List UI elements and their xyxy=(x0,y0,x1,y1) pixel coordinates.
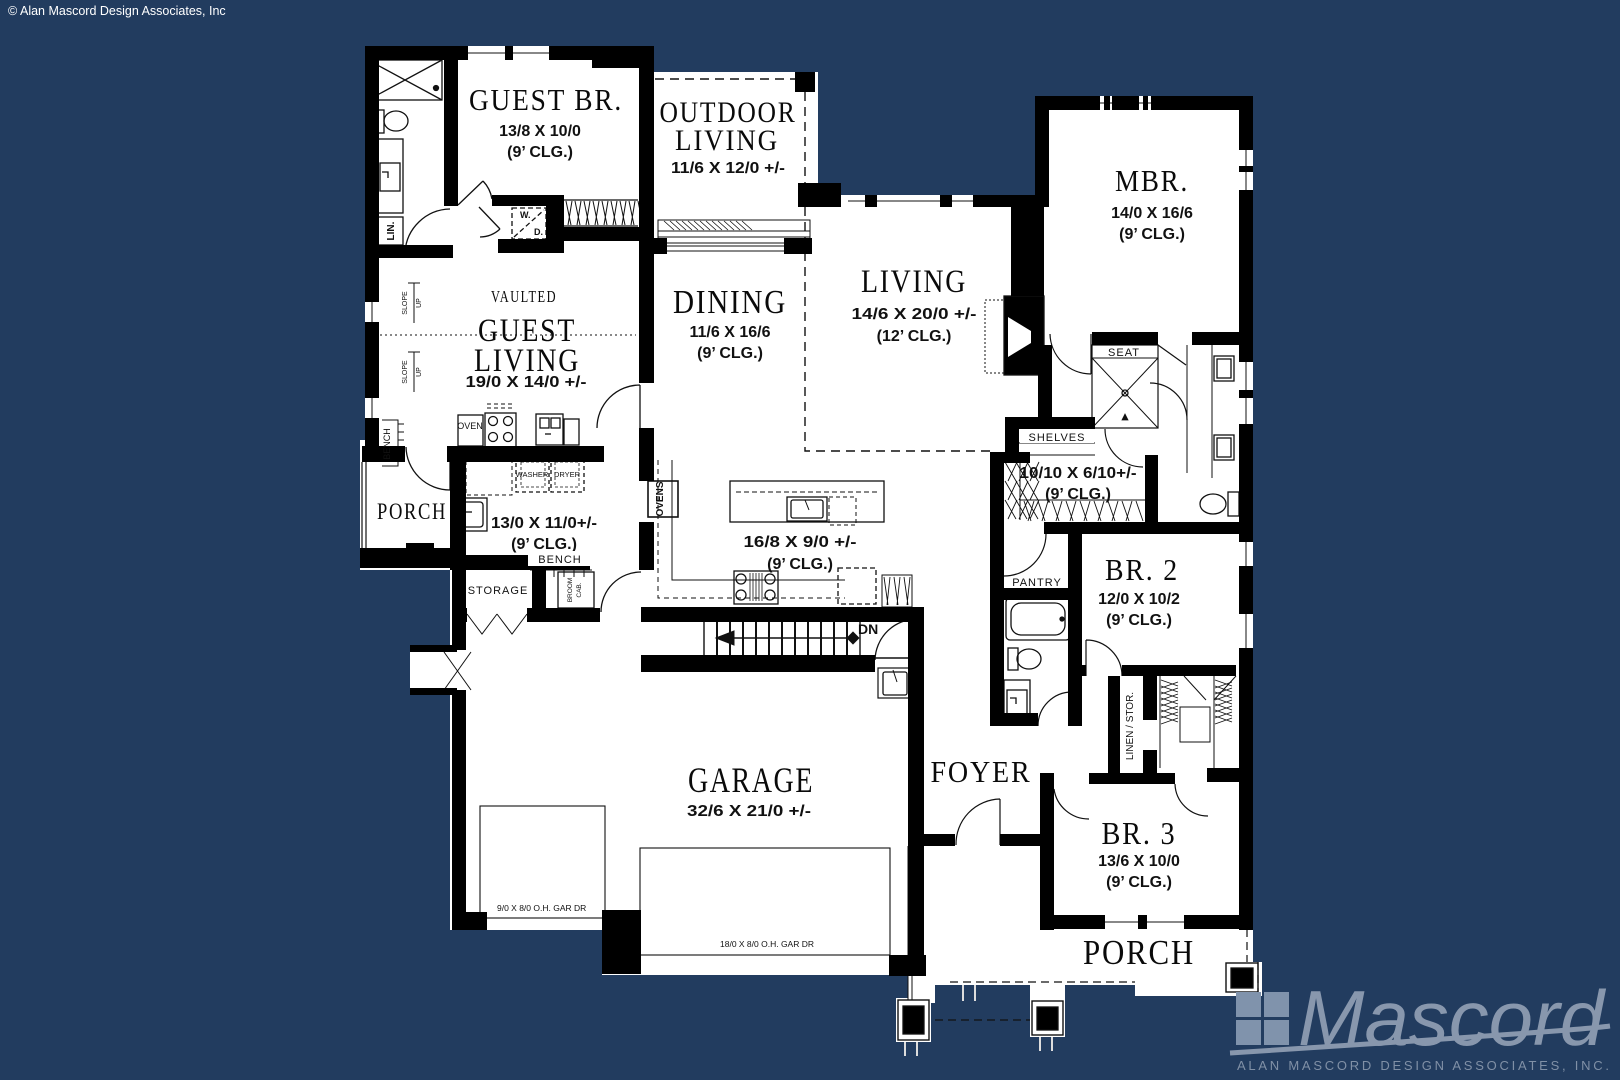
svg-text:PORCH: PORCH xyxy=(377,499,447,524)
svg-text:Mascord: Mascord xyxy=(1298,974,1607,1062)
svg-text:BR. 2: BR. 2 xyxy=(1105,552,1179,587)
svg-text:LIVING: LIVING xyxy=(675,124,779,157)
svg-text:UP: UP xyxy=(416,298,423,308)
svg-text:12/0 X 10/2: 12/0 X 10/2 xyxy=(1098,591,1180,608)
svg-text:BROOM: BROOM xyxy=(567,578,574,603)
svg-text:© Alan Mascord Design Associat: © Alan Mascord Design Associates, Inc xyxy=(8,4,226,18)
svg-text:(9’ CLG.): (9’ CLG.) xyxy=(1045,486,1111,503)
svg-text:DN: DN xyxy=(858,621,878,637)
svg-text:9/0 X 8/0 O.H. GAR DR: 9/0 X 8/0 O.H. GAR DR xyxy=(497,903,586,913)
svg-text:W.: W. xyxy=(520,210,531,220)
svg-text:(9’ CLG.): (9’ CLG.) xyxy=(1119,226,1185,243)
svg-text:(12’ CLG.): (12’ CLG.) xyxy=(877,328,952,345)
svg-text:14/0 X 16/6: 14/0 X 16/6 xyxy=(1111,205,1193,222)
svg-text:OVENS: OVENS xyxy=(655,481,666,516)
svg-text:(9’ CLG.): (9’ CLG.) xyxy=(697,345,763,362)
svg-text:(9’ CLG.): (9’ CLG.) xyxy=(511,536,577,553)
svg-text:32/6 X 21/0 +/-: 32/6 X 21/0 +/- xyxy=(687,803,811,820)
svg-text:(9’ CLG.): (9’ CLG.) xyxy=(507,144,573,161)
svg-text:13/6 X 10/0: 13/6 X 10/0 xyxy=(1098,853,1180,870)
svg-text:SEAT: SEAT xyxy=(1108,347,1140,359)
svg-text:OVEN: OVEN xyxy=(457,421,483,431)
svg-text:MBR.: MBR. xyxy=(1115,163,1189,198)
svg-text:PANTRY: PANTRY xyxy=(1012,577,1062,589)
svg-text:14/6 X 20/0 +/-: 14/6 X 20/0 +/- xyxy=(852,306,977,323)
svg-text:BENCH: BENCH xyxy=(538,554,582,566)
svg-text:11/6 X 16/6: 11/6 X 16/6 xyxy=(690,324,771,341)
svg-text:11/6 X 12/0 +/-: 11/6 X 12/0 +/- xyxy=(671,160,785,177)
svg-text:D.: D. xyxy=(534,227,543,237)
svg-text:WASHER: WASHER xyxy=(516,470,549,479)
svg-text:DRYER: DRYER xyxy=(554,470,581,479)
svg-text:VAULTED: VAULTED xyxy=(491,287,557,306)
svg-text:(9’ CLG.): (9’ CLG.) xyxy=(1106,874,1172,891)
svg-text:LIN.: LIN. xyxy=(386,221,397,240)
svg-text:SLOPE: SLOPE xyxy=(402,360,409,384)
svg-text:LIVING: LIVING xyxy=(861,264,967,300)
svg-text:BR. 3: BR. 3 xyxy=(1102,815,1177,851)
svg-text:CAB.: CAB. xyxy=(576,582,583,597)
svg-text:LINEN / STOR.: LINEN / STOR. xyxy=(1125,692,1136,760)
svg-text:DINING: DINING xyxy=(673,284,787,321)
svg-text:GARAGE: GARAGE xyxy=(688,760,814,800)
svg-text:GUEST BR.: GUEST BR. xyxy=(469,82,623,117)
svg-text:16/8 X 9/0 +/-: 16/8 X 9/0 +/- xyxy=(744,534,857,551)
svg-text:18/0 X 8/0 O.H. GAR DR: 18/0 X 8/0 O.H. GAR DR xyxy=(720,939,814,949)
svg-text:(9’ CLG.): (9’ CLG.) xyxy=(767,556,833,573)
svg-text:ALAN MASCORD DESIGN ASSOCIATES: ALAN MASCORD DESIGN ASSOCIATES, INC. xyxy=(1237,1058,1609,1073)
svg-text:PORCH: PORCH xyxy=(1083,933,1195,972)
svg-text:STORAGE: STORAGE xyxy=(468,585,529,597)
svg-text:10/10 X 6/10+/-: 10/10 X 6/10+/- xyxy=(1020,465,1137,482)
svg-text:UP: UP xyxy=(416,367,423,377)
svg-text:(9’ CLG.): (9’ CLG.) xyxy=(1106,612,1172,629)
svg-text:13/0 X 11/0+/-: 13/0 X 11/0+/- xyxy=(491,515,597,532)
svg-text:SLOPE: SLOPE xyxy=(402,291,409,315)
svg-text:BENCH: BENCH xyxy=(382,428,392,460)
svg-text:SHELVES: SHELVES xyxy=(1029,432,1086,444)
svg-text:FOYER: FOYER xyxy=(931,754,1032,789)
svg-text:19/0 X 14/0 +/-: 19/0 X 14/0 +/- xyxy=(466,374,587,391)
svg-text:13/8 X 10/0: 13/8 X 10/0 xyxy=(499,123,581,140)
